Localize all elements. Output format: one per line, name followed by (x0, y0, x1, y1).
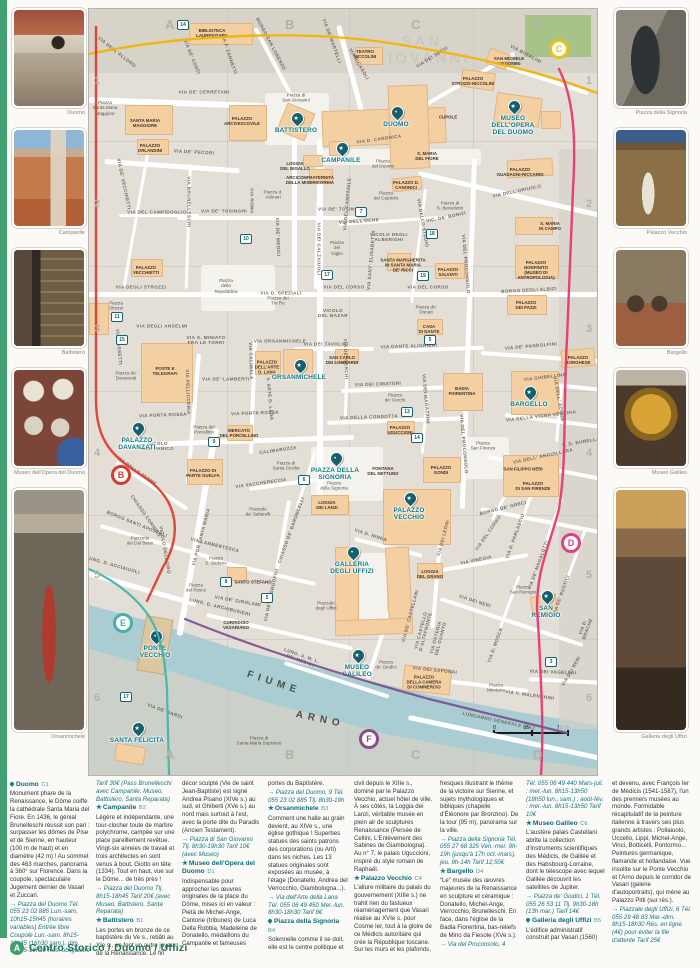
route-letter-marker-F: F (359, 729, 379, 749)
grid-reference: B1 (135, 918, 144, 924)
building-name-label: PALAZZO DI SAN FIRENZE (516, 481, 551, 491)
star-icon: ★ (96, 804, 102, 811)
building-name-label: LOGGIA DEL BIGALLO (280, 161, 310, 171)
numbered-poi-badge: 17 (321, 270, 333, 280)
street-name-label: VIA DEI CALZAIUOLI (317, 223, 322, 276)
building-name-label: PALAZZO GONDI (431, 465, 451, 475)
map-open-area (201, 265, 275, 311)
grid-row-label-right: 2 (586, 198, 592, 210)
piazza-name-label: Piazza del Pesce (186, 583, 206, 594)
street-name-label: VIA ORSANMICHELE (254, 339, 306, 344)
building-name-label: PALAZZO DEI PAZZI (516, 300, 537, 310)
sidebar-left-photos: DuomoCampanileBattisteroMuseo dell'Opera… (12, 8, 86, 740)
building-name-label: CORRIDOIO VASARIANO (223, 620, 249, 630)
grid-row-label-right: 6 (586, 692, 592, 704)
street-name-label: VIA DE' LAMBERTI (202, 377, 250, 382)
text-column-6: fresques illustrant le thème de la victo… (440, 780, 520, 936)
page-footer: A Centro Storico / Duomo / Uffizi (10, 941, 187, 955)
left-photo-card-1: Campanile (12, 128, 86, 236)
street-name-label: VIA BRUNELLESCHI (187, 176, 192, 227)
practical-info-text: → Piazzale degli Uffizi, 6 Tél. 055 29 4… (612, 906, 692, 945)
sight-name-label: BARGELLO (510, 401, 547, 408)
building-name-label: LOGGIA DEL GRANO (417, 569, 443, 579)
building-name-label: PALAZZO ARCIVESCOVILE (224, 116, 260, 126)
photo-duomo (14, 10, 84, 106)
building-name-label: BIBLIOTECA LAURENZIANA (196, 28, 228, 38)
grid-reference: B3 (320, 806, 329, 812)
pin-icon (267, 918, 273, 924)
grid-reference: D4 (474, 869, 483, 875)
sidebar-right-photos: Piazza della SignoriaPalazzo VecchioBarg… (614, 8, 688, 740)
grid-reference: B2 (137, 805, 146, 811)
star-icon: ★ (292, 114, 301, 123)
star-icon: ★ (405, 494, 414, 503)
map-ref-letter-badge: A (10, 941, 24, 955)
guide-text-columns: Duomo C1Monument phare de la Renaissance… (10, 780, 692, 936)
numbered-poi-badge: 13 (401, 407, 413, 417)
piazza-name-label: Piazza de' Cerchi (385, 393, 406, 404)
left-photo-card-0: Duomo (12, 8, 86, 116)
photo-caption: Campanile (12, 228, 86, 236)
piazza-name-label: Piazza Santa Maria Maggiore (93, 100, 118, 116)
sight-name-label: MUSEO GALILEO (342, 664, 372, 678)
photo-caption: Museo Galileo (614, 468, 688, 476)
description-text: et devenu, avec François Ier de Médicis … (612, 780, 692, 905)
star-icon: ★ (337, 144, 346, 153)
description-text: “Le” musée des œuvres majeures de la Ren… (440, 877, 520, 939)
piazza-name-label: Piazza de' Davanzati (115, 371, 136, 382)
sight-name-label: SANTA FELICITA (110, 737, 164, 744)
numbered-poi-badge: 19 (417, 271, 429, 281)
street-name-label: VICOLO DEL BAZAR (318, 308, 348, 318)
numbered-poi-badge: 8 (220, 577, 232, 587)
building-name-label: PALAZZO DI PARTE GUELFA (186, 468, 220, 478)
grid-reference: C1 (40, 782, 49, 788)
piazza-name-label: Piazza della Repubblica (215, 278, 238, 294)
piazza-name-label: Piazza del Giglio (330, 240, 344, 256)
grid-col-label-top: C (411, 17, 420, 32)
photo-frame (12, 128, 86, 228)
sight-entry-heading: ★Battistero B1 (96, 917, 176, 925)
sight-entry-heading: ★Museo Galileo C6 (526, 820, 606, 828)
description-text: L'austère palais Castellani abrite la co… (526, 829, 606, 891)
text-column-7: Tél. 055 06 49 440 Mars-juil. : mer.-lun… (526, 780, 606, 936)
description-text: L'édifice administratif construit par Va… (526, 927, 606, 943)
street-name-label: VIA ROMA (250, 188, 255, 214)
practical-info-text: → Via dell'Arte della Lana Tél. 055 06 4… (268, 894, 348, 917)
grid-reference: C6 (579, 821, 588, 827)
star-icon: ★ (133, 424, 142, 433)
grid-col-label-top: B (285, 17, 294, 32)
building-name-label: TEATRO NICCOLINI (354, 49, 376, 59)
grid-col-label-bottom: A (165, 747, 174, 762)
right-photo-card-2: Bargello (614, 248, 688, 356)
text-column-5: civil depuis le XIIIe s., dominé par le … (354, 780, 434, 936)
piazza-name-label: Piazza di Santa Cecilia (272, 461, 299, 472)
building-name-label: S. MARIA IN CAMPO (539, 221, 561, 231)
page-edge-strip (0, 0, 7, 938)
photo-pvecchio (616, 130, 686, 226)
piazza-name-label: Piazza Mentana (487, 683, 505, 694)
route-letter-marker-C: C (549, 39, 569, 59)
building-name-label: PALAZZO DELLA CAMERA DI COMMERCIO (407, 674, 442, 689)
numbered-poi-badge: 3 (545, 657, 557, 667)
description-text: L'allure militaire du palais du gouverne… (354, 884, 434, 954)
sight-entry-heading: ★Orsanmichele B3 (268, 805, 348, 813)
grid-row-label-right: 3 (586, 323, 592, 335)
left-photo-card-2: Battistero (12, 248, 86, 356)
sight-name-label: GALLERIA DEGLI UFFIZI (330, 561, 374, 575)
building-name-label: CASA DI DANTE (419, 324, 440, 334)
right-photo-card-4: Galleria degli Uffizi (614, 488, 688, 740)
photo-caption: Museo dell'Opera del Duomo (12, 468, 86, 476)
photo-uffizi (616, 490, 686, 730)
practical-info-text: → Piazza di San Giovanni Tlj. 8h30-19h30… (182, 836, 262, 859)
dot-icon: • (331, 454, 340, 463)
grid-col-label-bottom: D (533, 747, 542, 762)
description-text: Monument phare de la Renaissance, le Dôm… (10, 790, 90, 899)
building-name-label: ARCICONFRATERNITA DELLA MISERICORDIA (286, 175, 334, 185)
photo-bargello (616, 250, 686, 346)
photo-frame (614, 368, 688, 468)
piazza-name-label: Piazza San Firenze (471, 441, 496, 452)
text-column-2: Tarif 30€ (Pass Brunelleschi avec Campan… (96, 780, 176, 936)
sight-name-label: BATTISTERO (275, 127, 317, 134)
sight-name-label: ORSANMICHELE (272, 374, 326, 381)
practical-info-text: Tarif 30€ (Pass Brunelleschi avec Campan… (96, 780, 176, 803)
photo-caption: Orsanmichele (12, 732, 86, 740)
piazza-name-label: Piazza del Porcellino (193, 425, 214, 436)
star-icon: ★ (268, 805, 274, 812)
building-name-label: PALAZZO NONFINITO (MUSEO DI ANTROPOLOGIA… (517, 260, 554, 280)
sight-name-label: MUSEO DELL'OPERA DEL DUOMO (492, 115, 535, 137)
building-name-label: PALAZZO STROZZI-NICCOLINI (452, 76, 495, 86)
building-name-label: SAN MICHELE VISDOMINI (494, 56, 524, 66)
practical-info-text: Tél. 055 06 49 440 Mars-juil. : mer.-lun… (526, 780, 606, 819)
photo-frame (614, 248, 688, 348)
map-building (541, 111, 561, 129)
piazza-name-label: Piazza Strozzi (109, 301, 123, 312)
photo-frame (12, 488, 86, 732)
building-name-label: SAN FILIPPO NERI (503, 466, 542, 471)
photo-frame (614, 128, 688, 228)
dot-icon: • (151, 632, 160, 641)
photo-caption: Battistero (12, 348, 86, 356)
star-icon: ★ (526, 820, 532, 827)
grid-row-label-left: 3 (94, 323, 100, 335)
piazza-name-label: Piazza del Duomo (372, 159, 394, 170)
scale-bar-line (493, 732, 569, 734)
sight-name-label: PALAZZO DAVANZATI (118, 437, 155, 451)
route-letter-marker-B: B (111, 465, 131, 485)
piazza-name-label: Piazzetta dei Del Bene (127, 536, 153, 547)
numbered-poi-badge: 17 (120, 692, 132, 702)
piazza-name-label: Piazza di San Giovanni (282, 93, 310, 104)
building-name-label: PALAZZO D. CANONICI (393, 180, 419, 190)
photo-caption: Bargello (614, 348, 688, 356)
sight-name-label: CAMPANILE (321, 157, 360, 164)
practical-info-text: → Via del Proconsolo, 4 (440, 941, 520, 949)
sight-name-label: PALAZZO VECCHIO (393, 507, 424, 521)
building-name-label: PALAZZO SALVIATI (438, 267, 458, 277)
grid-col-label-bottom: C (411, 747, 420, 762)
building-name-label: SANTA MARIA MAGGIORE (130, 118, 160, 128)
route-letter-marker-E: E (113, 613, 133, 633)
description-text: Indispensable pour approcher les œuvres … (182, 878, 262, 948)
building-name-label: PALAZZO VECCHIETTI (133, 265, 159, 275)
right-photo-card-0: Piazza della Signoria (614, 8, 688, 116)
street-name-label: VIA DEL CORSO (323, 285, 364, 290)
grid-row-label-right: 1 (586, 75, 592, 87)
photo-campanile (14, 130, 84, 226)
building-name-label: POSTE E TELEGRAFI (153, 366, 178, 376)
sight-entry-heading: ★Palazzo Vecchio C4 (354, 875, 434, 883)
star-icon: ★ (182, 860, 188, 867)
numbered-poi-badge: 14 (411, 433, 423, 443)
grid-col-label-top: A (165, 17, 174, 32)
photo-caption: Galleria degli Uffizi (614, 732, 688, 740)
grid-col-label-bottom: B (285, 747, 294, 762)
photo-frame (614, 488, 688, 732)
grid-col-label-top: D (533, 17, 542, 32)
building-name-label: PALAZZO DELL'ARTE D. LANA (255, 359, 279, 374)
star-icon: ★ (96, 917, 102, 924)
star-icon: ★ (509, 102, 518, 111)
sight-entry-heading: Duomo C1 (10, 781, 90, 789)
piazza-name-label: Piazza del Capitolo (374, 191, 398, 202)
right-photo-card-3: Museo Galileo (614, 368, 688, 476)
street-name-label: VIA DEGLI STROZZI (116, 285, 167, 290)
piazza-name-label: Piazza d. Adimari (264, 190, 283, 201)
star-icon: ★ (353, 651, 362, 660)
sight-name-label: SAN REMIGIO (531, 605, 560, 619)
grid-row-label-right: 4 (586, 447, 592, 459)
description-text: Solennelle comme il se doit, elle est le… (268, 936, 348, 952)
dot-icon: • (348, 548, 357, 557)
practical-info-text: → Piazza de' Giudici, 1 Tél. 055 26 53 1… (526, 893, 606, 916)
sight-entry-heading: ★Museo dell'Opera del Duomo D1 (182, 860, 262, 877)
pin-icon (525, 917, 531, 923)
grid-row-label-left: 6 (94, 692, 100, 704)
building-name-label: SANTO STEFANO (234, 579, 271, 584)
text-column-8: et devenu, avec François Ier de Médicis … (612, 780, 692, 936)
building-name-label: PALAZZO ORLANDINI (138, 143, 162, 153)
photo-frame (12, 248, 86, 348)
building-name-label: S. MARIA DEL FIORE (415, 151, 438, 161)
street-name-label: VIA DEL CAMPIDOGLIO (127, 210, 187, 215)
description-text: civil depuis le XIIIe s., dominé par le … (354, 780, 434, 874)
building-name-label: SAN CARLO DEI LOMBARDI (326, 355, 358, 365)
grid-reference: B5 (592, 918, 601, 924)
numbered-poi-badge: 5 (424, 335, 436, 345)
numbered-poi-badge: 5 (261, 593, 273, 603)
description-text: décor sculpté (Vie de saint Jean-Baptist… (182, 780, 262, 835)
pin-icon (9, 781, 15, 787)
photo-frame (12, 368, 86, 468)
building-name-label: PALAZZO BORGHESE (565, 355, 590, 365)
photo-frame (12, 8, 86, 108)
photo-frame (614, 8, 688, 108)
florence-map: SAN GIOVANNI 0 35 70 m VIA DE' CERRETANI… (88, 8, 598, 776)
numbered-poi-badge: 14 (177, 20, 189, 30)
photo-battistero (14, 250, 84, 346)
piazza-name-label: Piazza S. Stefano (205, 556, 226, 567)
sight-entry-heading: ★Campanile B2 (96, 804, 176, 812)
star-icon: ★ (354, 875, 360, 882)
street-name-label: VIA DE' TOSINGHI (201, 209, 247, 214)
numbered-poi-badge: 15 (116, 335, 128, 345)
photo-signoria (616, 10, 686, 106)
route-letter-marker-D: D (561, 533, 581, 553)
street-name-label: VIA DE' CERRETANI (179, 90, 230, 95)
building-name-label: PALAZZO UGUCCIONI (387, 425, 412, 435)
numbered-poi-badge: 11 (111, 312, 123, 322)
dot-icon: • (392, 108, 401, 117)
numbered-poi-badge: 7 (355, 207, 367, 217)
piazza-name-label: Piazza de' Giudici (375, 660, 396, 671)
photo-caption: Piazza della Signoria (614, 108, 688, 116)
sight-name-label: DUOMO (383, 121, 409, 128)
description-text: Légère et indépendante, une tour-clocher… (96, 814, 176, 884)
description-text: Comment une halle au grain devient, au X… (268, 815, 348, 893)
text-column-3: décor sculpté (Vie de saint Jean-Baptist… (182, 780, 262, 936)
street-name-label: VIA DEGLI ANSELMI (136, 324, 187, 329)
photo-galileo (616, 370, 686, 466)
building-name-label: BADIA FIORENTINA (449, 386, 476, 396)
grid-row-label-left: 5 (94, 569, 100, 581)
piazza-name-label: Piazza de' Donati (415, 305, 436, 316)
numbered-poi-badge: 9 (208, 437, 220, 447)
building-name-label: MERCATO DEL PORCELLINO (220, 428, 259, 438)
numbered-poi-badge: 6 (298, 475, 310, 485)
piazza-name-label: Piazzale degli Uffizi (315, 601, 336, 612)
star-icon: ★ (525, 388, 534, 397)
grid-row-label-left: 4 (94, 447, 100, 459)
piazza-name-label: Piazza San Remigio (510, 585, 536, 596)
description-text: fresques illustrant le thème de la victo… (440, 780, 520, 835)
grid-row-label-right: 5 (586, 569, 592, 581)
practical-info-text: → Piazza del Duomo Tlj. 8h15-18h45 Tarif… (96, 885, 176, 916)
grid-row-label-left: 2 (94, 198, 100, 210)
practical-info-text: → Piazza del Duomo, 9 Tél. 055 23 02 885… (268, 789, 348, 805)
description-text: portes du Baptistère. (268, 780, 348, 788)
text-column-1: Duomo C1Monument phare de la Renaissance… (10, 780, 90, 936)
star-icon: ★ (542, 592, 551, 601)
map-grid-line-h (89, 639, 597, 640)
sight-name-label: PIAZZA DELLA SIGNORIA (311, 467, 359, 481)
grid-reference: B4 (268, 928, 275, 934)
left-photo-card-3: Museo dell'Opera del Duomo (12, 368, 86, 476)
piazza-name-label: Piazza di S. Benedetto (437, 201, 464, 212)
star-icon: ★ (440, 868, 446, 875)
building-name-label: LOGGIA DEI LANZI (316, 500, 337, 510)
street-line (177, 216, 357, 220)
photo-opera (14, 370, 84, 466)
grid-reference: D1 (206, 869, 215, 875)
street-name-label: VIA DEI TAVOLINI (304, 342, 349, 347)
piazza-name-label: Piazzale de' Salterelli (246, 507, 271, 518)
numbered-poi-badge: 10 (240, 234, 252, 244)
star-icon: ★ (295, 361, 304, 370)
photo-orsanmichele (14, 490, 84, 730)
street-name-label: VIA S. MINIATO FRA LE TORRI (187, 335, 226, 345)
text-column-4: portes du Baptistère.→ Piazza del Duomo,… (268, 780, 348, 936)
piazza-name-label: Piazza dei Tre Re (267, 296, 288, 307)
photo-caption: Palazzo Vecchio (614, 228, 688, 236)
piazza-name-label: Piazza della Signoria (320, 481, 348, 492)
star-icon: ★ (133, 724, 142, 733)
sight-entry-heading: Piazza della Signoria B4 (268, 918, 348, 935)
sight-name-label: PONTE VECCHIO (140, 645, 171, 659)
photo-caption: Duomo (12, 108, 86, 116)
grid-reference: C4 (413, 876, 422, 882)
street-name-label: VIA DEL CORSO (407, 285, 448, 290)
building-name-label: FONTANA DEL NETTUNO (367, 466, 398, 476)
piazza-name-label: Piazza di Santa Maria Soprarno (237, 736, 282, 747)
building-name-label: CUPOLE (439, 114, 457, 119)
sight-entry-heading: Galleria degli Uffizi B5 (526, 917, 606, 925)
grid-row-label-left: 1 (94, 75, 100, 87)
sight-entry-heading: ★Bargello D4 (440, 868, 520, 876)
page-title: Centro Storico / Duomo / Uffizi (29, 942, 187, 954)
practical-info-text: → Piazza della Signoria Tél. 055 27 68 3… (440, 836, 520, 867)
building-name-label: PALAZZO GUADAGNI-RICCARDI (497, 167, 544, 177)
left-photo-card-4: Orsanmichele (12, 488, 86, 740)
numbered-poi-badge: 18 (426, 229, 438, 239)
right-photo-card-1: Palazzo Vecchio (614, 128, 688, 236)
